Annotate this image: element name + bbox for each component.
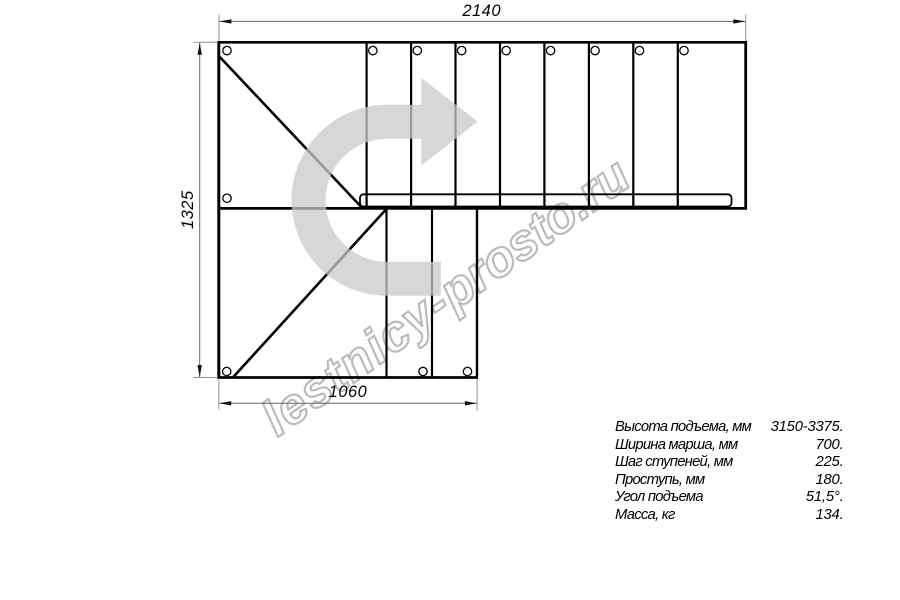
svg-text:1060: 1060: [329, 383, 368, 401]
svg-text:2140: 2140: [461, 2, 501, 20]
svg-text:1325: 1325: [179, 190, 197, 229]
